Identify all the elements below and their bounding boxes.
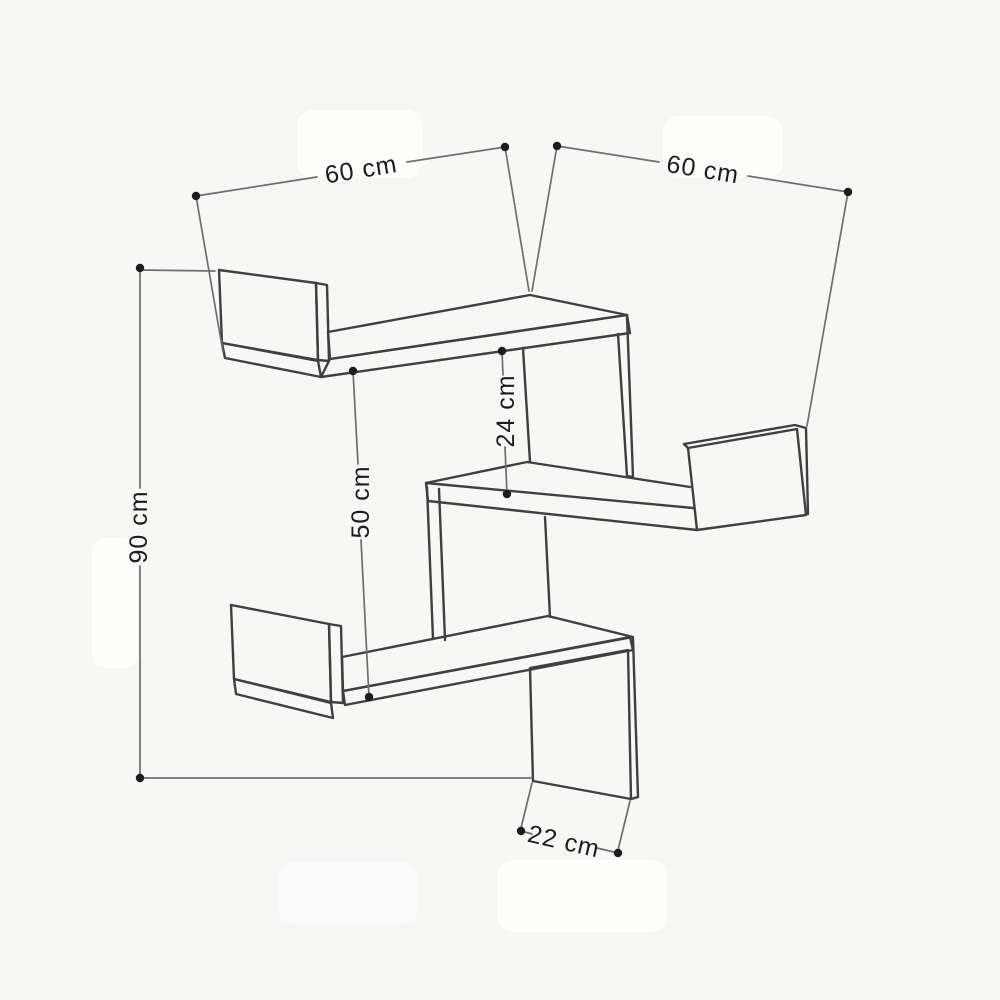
highlight-patch	[278, 862, 418, 924]
dimension-dot	[136, 264, 144, 272]
dimension-dot	[136, 774, 144, 782]
highlight-patch	[497, 860, 667, 932]
dimension-dot	[553, 142, 561, 150]
bottom-shelf-left-end-panel	[231, 605, 331, 702]
dimension-dot	[349, 367, 357, 375]
bottom-shelf-surface	[342, 616, 633, 691]
top-shelf	[219, 270, 630, 377]
diagram-canvas: 60 cm 60 cm 90 cm 24 cm 50 cm	[0, 0, 1000, 1000]
extension-lines	[532, 146, 848, 426]
top-shelf-surface	[328, 295, 627, 359]
dimension-dot	[501, 143, 509, 151]
dimension-dot	[498, 347, 506, 355]
dimension-dot	[503, 490, 511, 498]
shelf-outline	[219, 270, 808, 799]
top-shelf-left-end-panel-edge	[316, 283, 329, 361]
dimension-dot	[192, 192, 200, 200]
dimension-label-gap-lower: 50 cm	[347, 465, 375, 538]
top-shelf-left-end-panel	[219, 270, 318, 360]
wall-corner-edge	[545, 517, 550, 617]
dimension-label-height-total: 90 cm	[125, 490, 153, 563]
background-patches	[92, 110, 783, 932]
hanging-side-panel	[530, 650, 631, 799]
dimension-dot	[517, 827, 525, 835]
bottom-shelf-left-end-panel-edge	[329, 624, 343, 703]
hanging-side-panel-edge	[631, 638, 638, 799]
dimension-label-depth: 22 cm	[525, 820, 602, 863]
middle-shelf-right-end-panel	[688, 429, 806, 530]
lower-vertical-divider	[427, 487, 445, 640]
dimension-dot	[614, 849, 622, 857]
top-shelf-left-bottom-band	[222, 343, 321, 377]
dimension-width-right: 60 cm	[532, 142, 852, 426]
dimension-dot	[844, 188, 852, 196]
bottom-shelf	[231, 605, 638, 799]
dimension-annotations: 60 cm 60 cm 90 cm 24 cm 50 cm	[125, 142, 852, 864]
dimension-dot	[365, 693, 373, 701]
dimension-label-gap-upper: 24 cm	[492, 374, 520, 447]
middle-shelf-slab	[426, 462, 697, 530]
dimension-width-left: 60 cm	[192, 143, 529, 352]
shelf-dimension-diagram: 60 cm 60 cm 90 cm 24 cm 50 cm	[0, 0, 1000, 1000]
dimension-gap-upper: 24 cm	[492, 347, 520, 498]
middle-shelf	[426, 425, 808, 640]
